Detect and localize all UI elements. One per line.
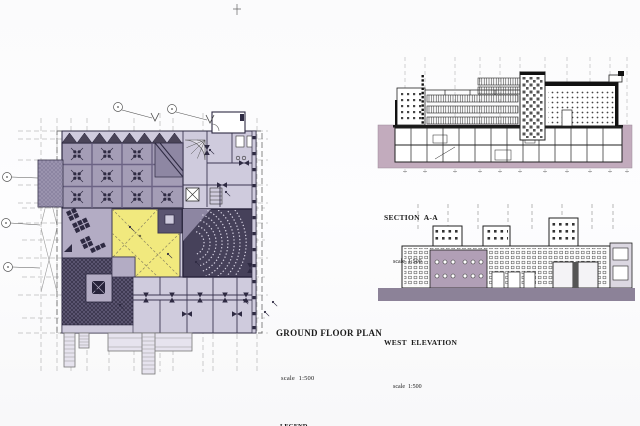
- section-title-block: SECTION A-A scale 1:500: [384, 177, 438, 303]
- plan-dark-room: [158, 209, 182, 233]
- top-tick: [233, 4, 241, 15]
- plan-left-wing: [38, 160, 63, 207]
- plan-ramp: [155, 143, 183, 177]
- elevation-scale: scale 1:500: [393, 384, 457, 391]
- elevation-roof-boxes: [433, 218, 578, 246]
- plan-scale: scale 1:500: [281, 375, 382, 382]
- section-scale: scale 1:500: [393, 259, 438, 266]
- section-ground-mass: [378, 125, 632, 168]
- plan-entry-room: [212, 112, 245, 133]
- plan-landing: [112, 257, 135, 277]
- elevation-title-block: WEST ELEVATION scale 1:500: [384, 302, 457, 426]
- plan-title-block: GROUND FLOOR PLAN scale 1:500 LEGEND Adm…: [276, 291, 382, 426]
- plan-colonnade: [252, 131, 256, 333]
- plan-furniture-room: [62, 208, 112, 258]
- section-drawing: [375, 55, 637, 177]
- plan-title: GROUND FLOOR PLAN: [276, 328, 382, 338]
- ground-floor-plan-drawing: [0, 0, 300, 410]
- elevation-title: WEST ELEVATION: [384, 339, 457, 348]
- presentation-sheet: GROUND FLOOR PLAN scale 1:500 LEGEND Adm…: [0, 0, 640, 426]
- section-title: SECTION A-A: [384, 214, 438, 223]
